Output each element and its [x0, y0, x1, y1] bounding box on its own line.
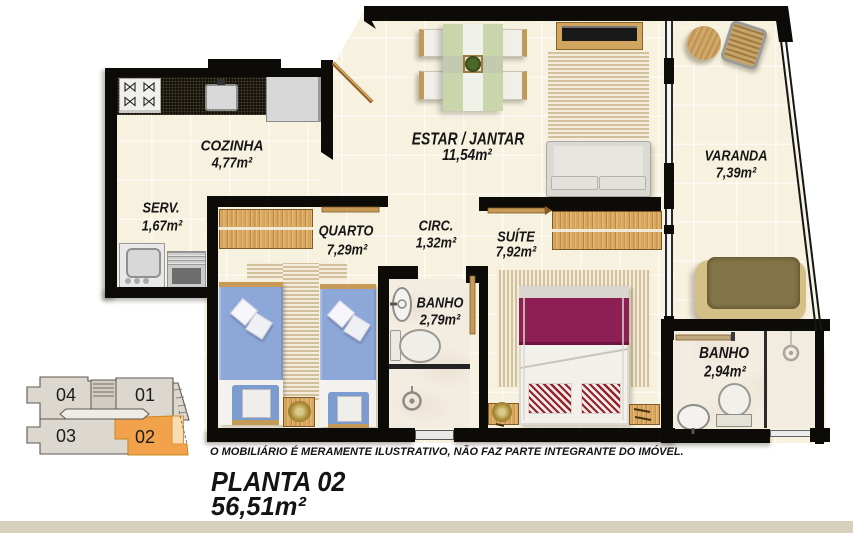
- svg-text:02: 02: [135, 427, 155, 447]
- svg-text:03: 03: [56, 426, 76, 446]
- svg-text:01: 01: [135, 385, 155, 405]
- svg-text:04: 04: [56, 385, 76, 405]
